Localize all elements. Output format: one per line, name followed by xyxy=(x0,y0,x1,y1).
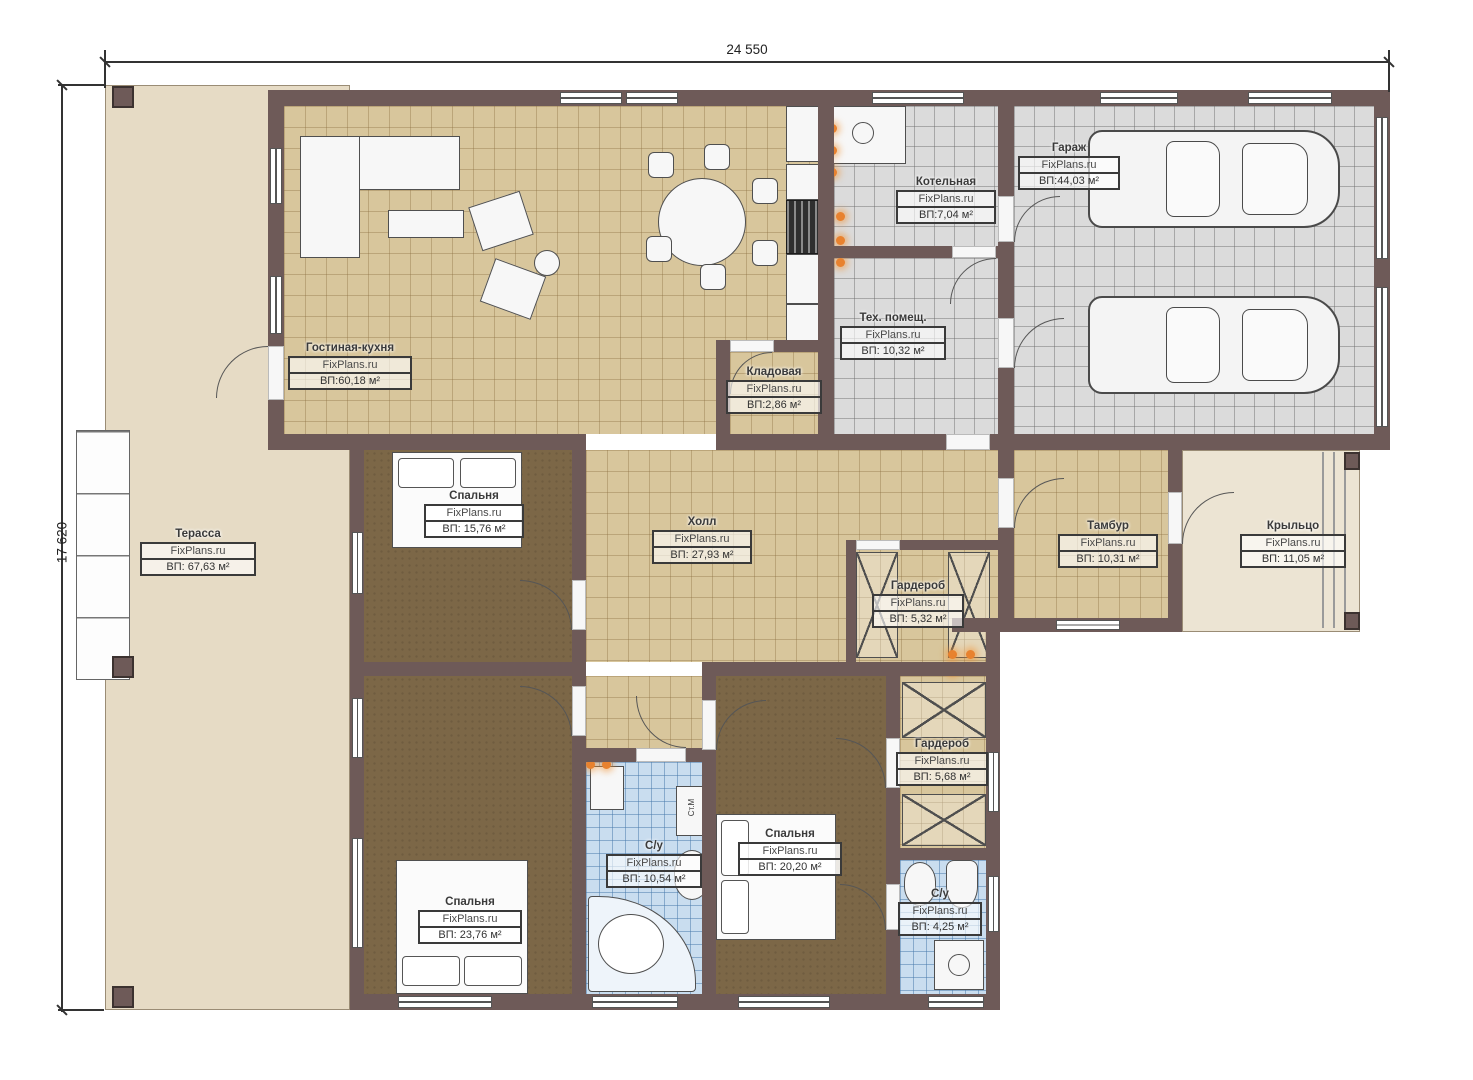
window xyxy=(626,92,678,104)
window xyxy=(398,996,492,1008)
room-info-box: FixPlans.ru ВП:2,86 м² xyxy=(726,380,822,414)
room-name: Терасса xyxy=(140,528,256,540)
room-name: Холл xyxy=(652,516,752,528)
wall xyxy=(572,450,586,676)
chair xyxy=(646,236,672,262)
wall xyxy=(986,632,1000,1010)
room-info-box: FixPlans.ru ВП: 10,31 м² xyxy=(1058,534,1158,568)
dimension-height-label: 17 620 xyxy=(55,493,70,593)
room-area: ВП: 11,05 м² xyxy=(1242,552,1344,566)
watermark: FixPlans.ru xyxy=(290,358,410,374)
towel-radiator xyxy=(590,766,624,810)
garage-door-opening xyxy=(1376,287,1388,427)
room-label-wardrobe1: Гардероб FixPlans.ru ВП: 5,32 м² xyxy=(872,580,964,628)
window xyxy=(270,148,282,204)
porch-pillar xyxy=(1344,452,1360,470)
room-area: ВП: 5,32 м² xyxy=(874,612,962,626)
room-name: Крыльцо xyxy=(1240,520,1346,532)
room-name: Спальня xyxy=(738,828,842,840)
burner-dot xyxy=(836,212,845,221)
terrace-pillar xyxy=(112,986,134,1008)
room-label-pantry: Кладовая FixPlans.ru ВП:2,86 м² xyxy=(726,366,822,414)
car-rear-window xyxy=(1242,309,1308,381)
window xyxy=(270,276,282,334)
window xyxy=(352,698,363,758)
watermark: FixPlans.ru xyxy=(1242,536,1344,552)
wall xyxy=(1014,434,1390,450)
door-opening xyxy=(730,340,774,352)
watermark: FixPlans.ru xyxy=(1020,158,1118,174)
burner-dot xyxy=(836,236,845,245)
room-area: ВП:2,86 м² xyxy=(728,398,820,412)
watermark: FixPlans.ru xyxy=(740,844,840,860)
room-area: ВП:44,03 м² xyxy=(1020,174,1118,188)
room-info-box: FixPlans.ru ВП: 10,32 м² xyxy=(840,326,946,360)
room-info-box: FixPlans.ru ВП: 20,20 м² xyxy=(738,842,842,876)
pillow xyxy=(464,956,522,986)
closet xyxy=(902,682,986,738)
room-name: Гараж xyxy=(1018,142,1120,154)
room-info-box: FixPlans.ru ВП: 15,76 м² xyxy=(424,504,524,538)
pillow xyxy=(402,956,460,986)
window xyxy=(352,532,363,594)
room-info-box: FixPlans.ru ВП:44,03 м² xyxy=(1018,156,1120,190)
window xyxy=(928,996,984,1008)
dimension-line-top xyxy=(105,61,1390,63)
kitchen-sink xyxy=(852,122,874,144)
room-area: ВП: 4,25 м² xyxy=(900,920,980,934)
watermark: FixPlans.ru xyxy=(142,544,254,560)
watermark: FixPlans.ru xyxy=(900,904,980,920)
watermark: FixPlans.ru xyxy=(728,382,820,398)
room-area: ВП: 27,93 м² xyxy=(654,548,750,562)
window xyxy=(988,752,999,812)
watermark: FixPlans.ru xyxy=(426,506,522,522)
room-label-bedroom2: Спальня FixPlans.ru ВП: 23,76 м² xyxy=(418,896,522,944)
chair xyxy=(648,152,674,178)
car-windshield xyxy=(1166,141,1220,217)
pillow xyxy=(460,458,516,488)
watermark: FixPlans.ru xyxy=(842,328,944,344)
room-label-boiler: Котельная FixPlans.ru ВП:7,04 м² xyxy=(896,176,996,224)
door-opening xyxy=(998,318,1014,368)
light-dot xyxy=(948,650,957,659)
room-info-box: FixPlans.ru ВП: 23,76 м² xyxy=(418,910,522,944)
side-table xyxy=(534,250,560,276)
garage-door-opening xyxy=(1376,117,1388,259)
room-info-box: FixPlans.ru ВП: 4,25 м² xyxy=(898,902,982,936)
window xyxy=(560,92,622,104)
room-name: Гардероб xyxy=(896,738,988,750)
door-opening xyxy=(572,580,586,630)
kitchen-counter xyxy=(786,254,820,304)
room-info-box: FixPlans.ru ВП:60,18 м² xyxy=(288,356,412,390)
chair xyxy=(700,264,726,290)
room-label-living-kitchen: Гостиная-кухня FixPlans.ru ВП:60,18 м² xyxy=(288,342,412,390)
watermark: FixPlans.ru xyxy=(898,754,986,770)
watermark: FixPlans.ru xyxy=(420,912,520,928)
window xyxy=(1100,92,1178,104)
shower-drain xyxy=(948,954,970,976)
room-label-wardrobe2: Гардероб FixPlans.ru ВП: 5,68 м² xyxy=(896,738,988,786)
room-name: Тех. помещ. xyxy=(840,312,946,324)
watermark: FixPlans.ru xyxy=(654,532,750,548)
tv-stand xyxy=(388,210,464,238)
room-area: ВП: 23,76 м² xyxy=(420,928,520,942)
light-dot xyxy=(966,650,975,659)
room-name: Кладовая xyxy=(726,366,822,378)
chair xyxy=(752,178,778,204)
wall xyxy=(716,662,1000,676)
door-opening xyxy=(998,196,1014,242)
room-name: С/у xyxy=(898,888,982,900)
room-info-box: FixPlans.ru ВП: 5,32 м² xyxy=(872,594,964,628)
wall xyxy=(998,106,1014,434)
door-opening xyxy=(952,246,996,258)
burner-dot xyxy=(836,258,845,267)
closet xyxy=(902,794,986,846)
window xyxy=(872,92,964,104)
room-label-bathroom2: С/у FixPlans.ru ВП: 4,25 м² xyxy=(898,888,982,936)
room-info-box: FixPlans.ru ВП:7,04 м² xyxy=(896,190,996,224)
terrace-pillar xyxy=(112,656,134,678)
room-label-bedroom3: Спальня FixPlans.ru ВП: 20,20 м² xyxy=(738,828,842,876)
chair xyxy=(752,240,778,266)
chair xyxy=(704,144,730,170)
car-top-view xyxy=(1088,296,1340,394)
room-info-box: FixPlans.ru ВП: 5,68 м² xyxy=(896,752,988,786)
room-label-garage: Гараж FixPlans.ru ВП:44,03 м² xyxy=(1018,142,1120,190)
room-name: Тамбур xyxy=(1058,520,1158,532)
door-opening xyxy=(636,748,686,762)
window xyxy=(988,876,999,932)
car-top-view xyxy=(1088,130,1340,228)
door-opening xyxy=(856,540,900,550)
room-name: Котельная xyxy=(896,176,996,188)
room-label-bathroom1: С/у FixPlans.ru ВП: 10,54 м² xyxy=(606,840,702,888)
wall xyxy=(846,540,856,662)
pillow xyxy=(721,880,749,934)
room-name: Гостиная-кухня xyxy=(288,342,412,354)
door-opening xyxy=(998,478,1014,528)
room-info-box: FixPlans.ru ВП: 10,54 м² xyxy=(606,854,702,888)
floor-plan: Ст.М xyxy=(0,0,1473,1080)
room-label-hall: Холл FixPlans.ru ВП: 27,93 м² xyxy=(652,516,752,564)
watermark: FixPlans.ru xyxy=(1060,536,1156,552)
door-opening xyxy=(702,700,716,750)
stove xyxy=(786,200,820,254)
wall xyxy=(268,90,1390,106)
door-opening xyxy=(268,346,284,400)
room-label-porch: Крыльцо FixPlans.ru ВП: 11,05 м² xyxy=(1240,520,1346,568)
porch-pillar xyxy=(1344,612,1360,630)
room-info-box: FixPlans.ru ВП: 27,93 м² xyxy=(652,530,752,564)
room-info-box: FixPlans.ru ВП: 11,05 м² xyxy=(1240,534,1346,568)
room-label-tech: Тех. помещ. FixPlans.ru ВП: 10,32 м² xyxy=(840,312,946,360)
watermark: FixPlans.ru xyxy=(874,596,962,612)
extension-line xyxy=(104,50,106,88)
door-opening xyxy=(946,434,990,450)
window xyxy=(738,996,830,1008)
car-rear-window xyxy=(1242,143,1308,215)
wall xyxy=(350,662,586,676)
room-area: ВП: 5,68 м² xyxy=(898,770,986,784)
room-label-vestibule: Тамбур FixPlans.ru ВП: 10,31 м² xyxy=(1058,520,1158,568)
window xyxy=(352,838,363,948)
room-info-box: FixPlans.ru ВП: 67,63 м² xyxy=(140,542,256,576)
sofa-chaise xyxy=(300,136,360,258)
room-area: ВП: 10,32 м² xyxy=(842,344,944,358)
bathtub-basin xyxy=(598,914,664,974)
room-area: ВП: 10,31 м² xyxy=(1060,552,1156,566)
room-label-terrace: Терасса FixPlans.ru ВП: 67,63 м² xyxy=(140,528,256,576)
hall-floor xyxy=(586,450,998,662)
dimension-width-label: 24 550 xyxy=(697,42,797,57)
wall xyxy=(268,434,586,450)
room-area: ВП:60,18 м² xyxy=(290,374,410,388)
window xyxy=(1056,620,1120,630)
door-opening xyxy=(572,686,586,736)
window xyxy=(592,996,678,1008)
room-label-bedroom1: Спальня FixPlans.ru ВП: 15,76 м² xyxy=(424,490,524,538)
watermark: FixPlans.ru xyxy=(898,192,994,208)
room-name: С/у xyxy=(606,840,702,852)
room-area: ВП:7,04 м² xyxy=(898,208,994,222)
terrace-pillar xyxy=(112,86,134,108)
kitchen-counter xyxy=(786,164,820,200)
washing-machine-label: Ст.М xyxy=(687,799,696,816)
window xyxy=(1248,92,1332,104)
room-name: Гардероб xyxy=(872,580,964,592)
watermark: FixPlans.ru xyxy=(608,856,700,872)
terrace-bench xyxy=(76,430,130,680)
pillow xyxy=(398,458,454,488)
room-name: Спальня xyxy=(418,896,522,908)
kitchen-counter xyxy=(786,106,820,162)
room-area: ВП: 20,20 м² xyxy=(740,860,840,874)
wall xyxy=(886,848,990,860)
room-area: ВП: 67,63 м² xyxy=(142,560,254,574)
car-windshield xyxy=(1166,307,1220,383)
room-area: ВП: 10,54 м² xyxy=(608,872,700,886)
room-name: Спальня xyxy=(424,490,524,502)
door-opening xyxy=(1168,492,1182,544)
room-area: ВП: 15,76 м² xyxy=(426,522,522,536)
extension-line xyxy=(1388,50,1390,92)
